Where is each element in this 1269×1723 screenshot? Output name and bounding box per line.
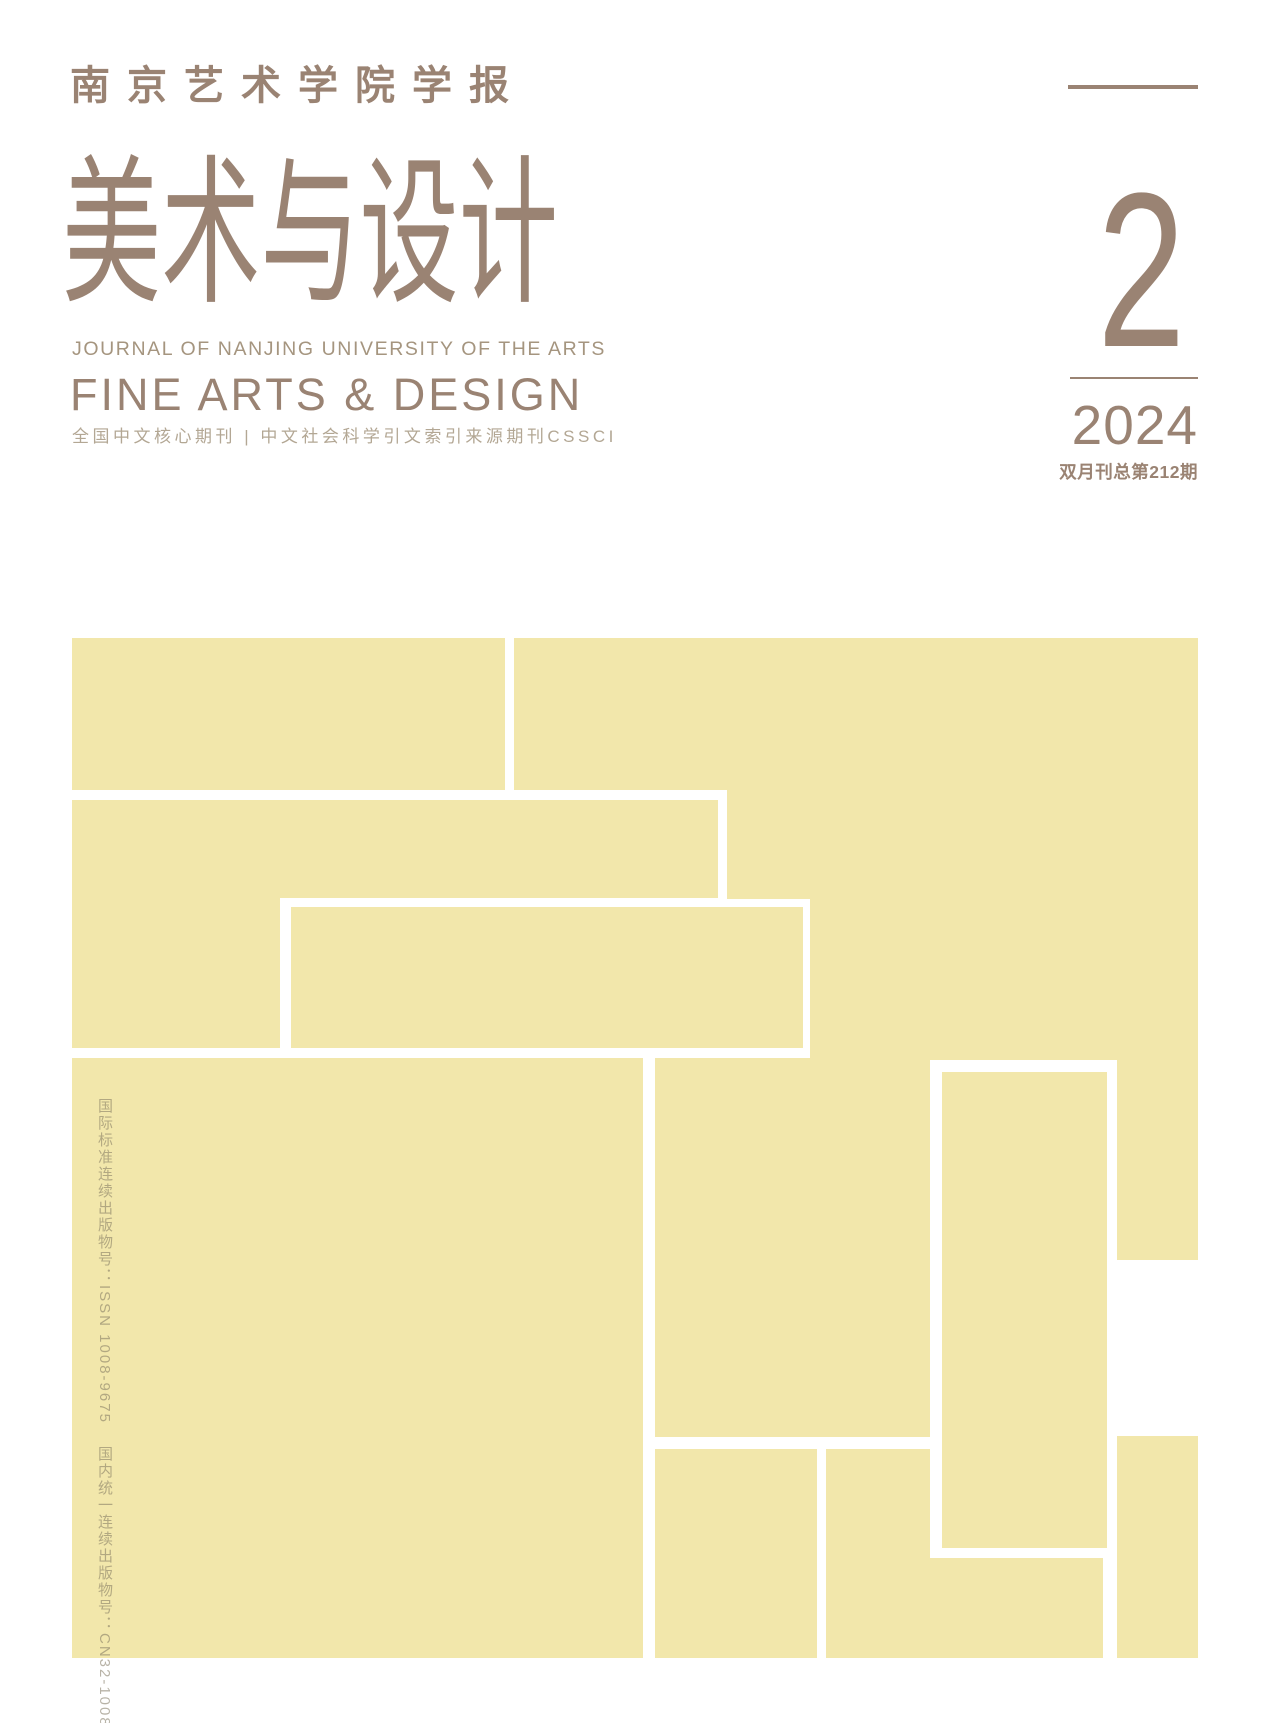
indexing-line: 全国中文核心期刊 | 中文社会科学引文索引来源期刊CSSCI	[72, 428, 617, 445]
mosaic-block-far-right-upper	[1117, 1060, 1198, 1260]
mosaic-block-row3-center	[291, 907, 803, 1048]
mosaic-block-right-mid	[810, 899, 1198, 1060]
magazine-cover: 南京艺术学院学报 美术与设计 JOURNAL OF NANJING UNIVER…	[0, 0, 1269, 1723]
issue-frequency: 双月刊总第212期	[1059, 464, 1198, 482]
issue-rule-middle	[1070, 377, 1198, 379]
mosaic-block-bottom-center-left	[655, 1449, 817, 1658]
mosaic-block-center-tall	[655, 1058, 930, 1437]
mosaic-block-bottom-left-large	[72, 1058, 643, 1658]
cn-number: 国内统一连续出版物号：CN32-1008/J	[96, 1424, 113, 1723]
journal-name-english: JOURNAL OF NANJING UNIVERSITY OF THE ART…	[72, 340, 606, 360]
mosaic-block-bottom-step-right	[930, 1558, 1103, 1658]
mosaic-block-row2-wide	[72, 800, 718, 898]
journal-name-chinese: 南京艺术学院学报	[70, 66, 526, 106]
mosaic-block-bottom-step-left	[826, 1449, 930, 1658]
mosaic-block-far-right-lower	[1117, 1436, 1198, 1658]
issn-number: 国际标准连续出版物号：ISSN 1008-9675	[96, 1098, 113, 1424]
mosaic-block-top-left	[72, 638, 505, 790]
mosaic-block-right-upper	[727, 790, 1198, 899]
cover-title-chinese: 美术与设计	[62, 150, 558, 318]
issue-rule-top	[1068, 85, 1198, 89]
cover-title-english: FINE ARTS & DESIGN	[70, 372, 583, 417]
mosaic-block-right-column	[942, 1072, 1107, 1548]
mosaic-block-left-stub	[72, 898, 280, 1048]
issue-number: 2	[1097, 160, 1185, 380]
mosaic-block-top-right	[514, 638, 1198, 790]
registration-numbers-vertical: 国际标准连续出版物号：ISSN 1008-9675国内统一连续出版物号：CN32…	[94, 1098, 115, 1578]
issue-year: 2024	[1072, 398, 1198, 453]
